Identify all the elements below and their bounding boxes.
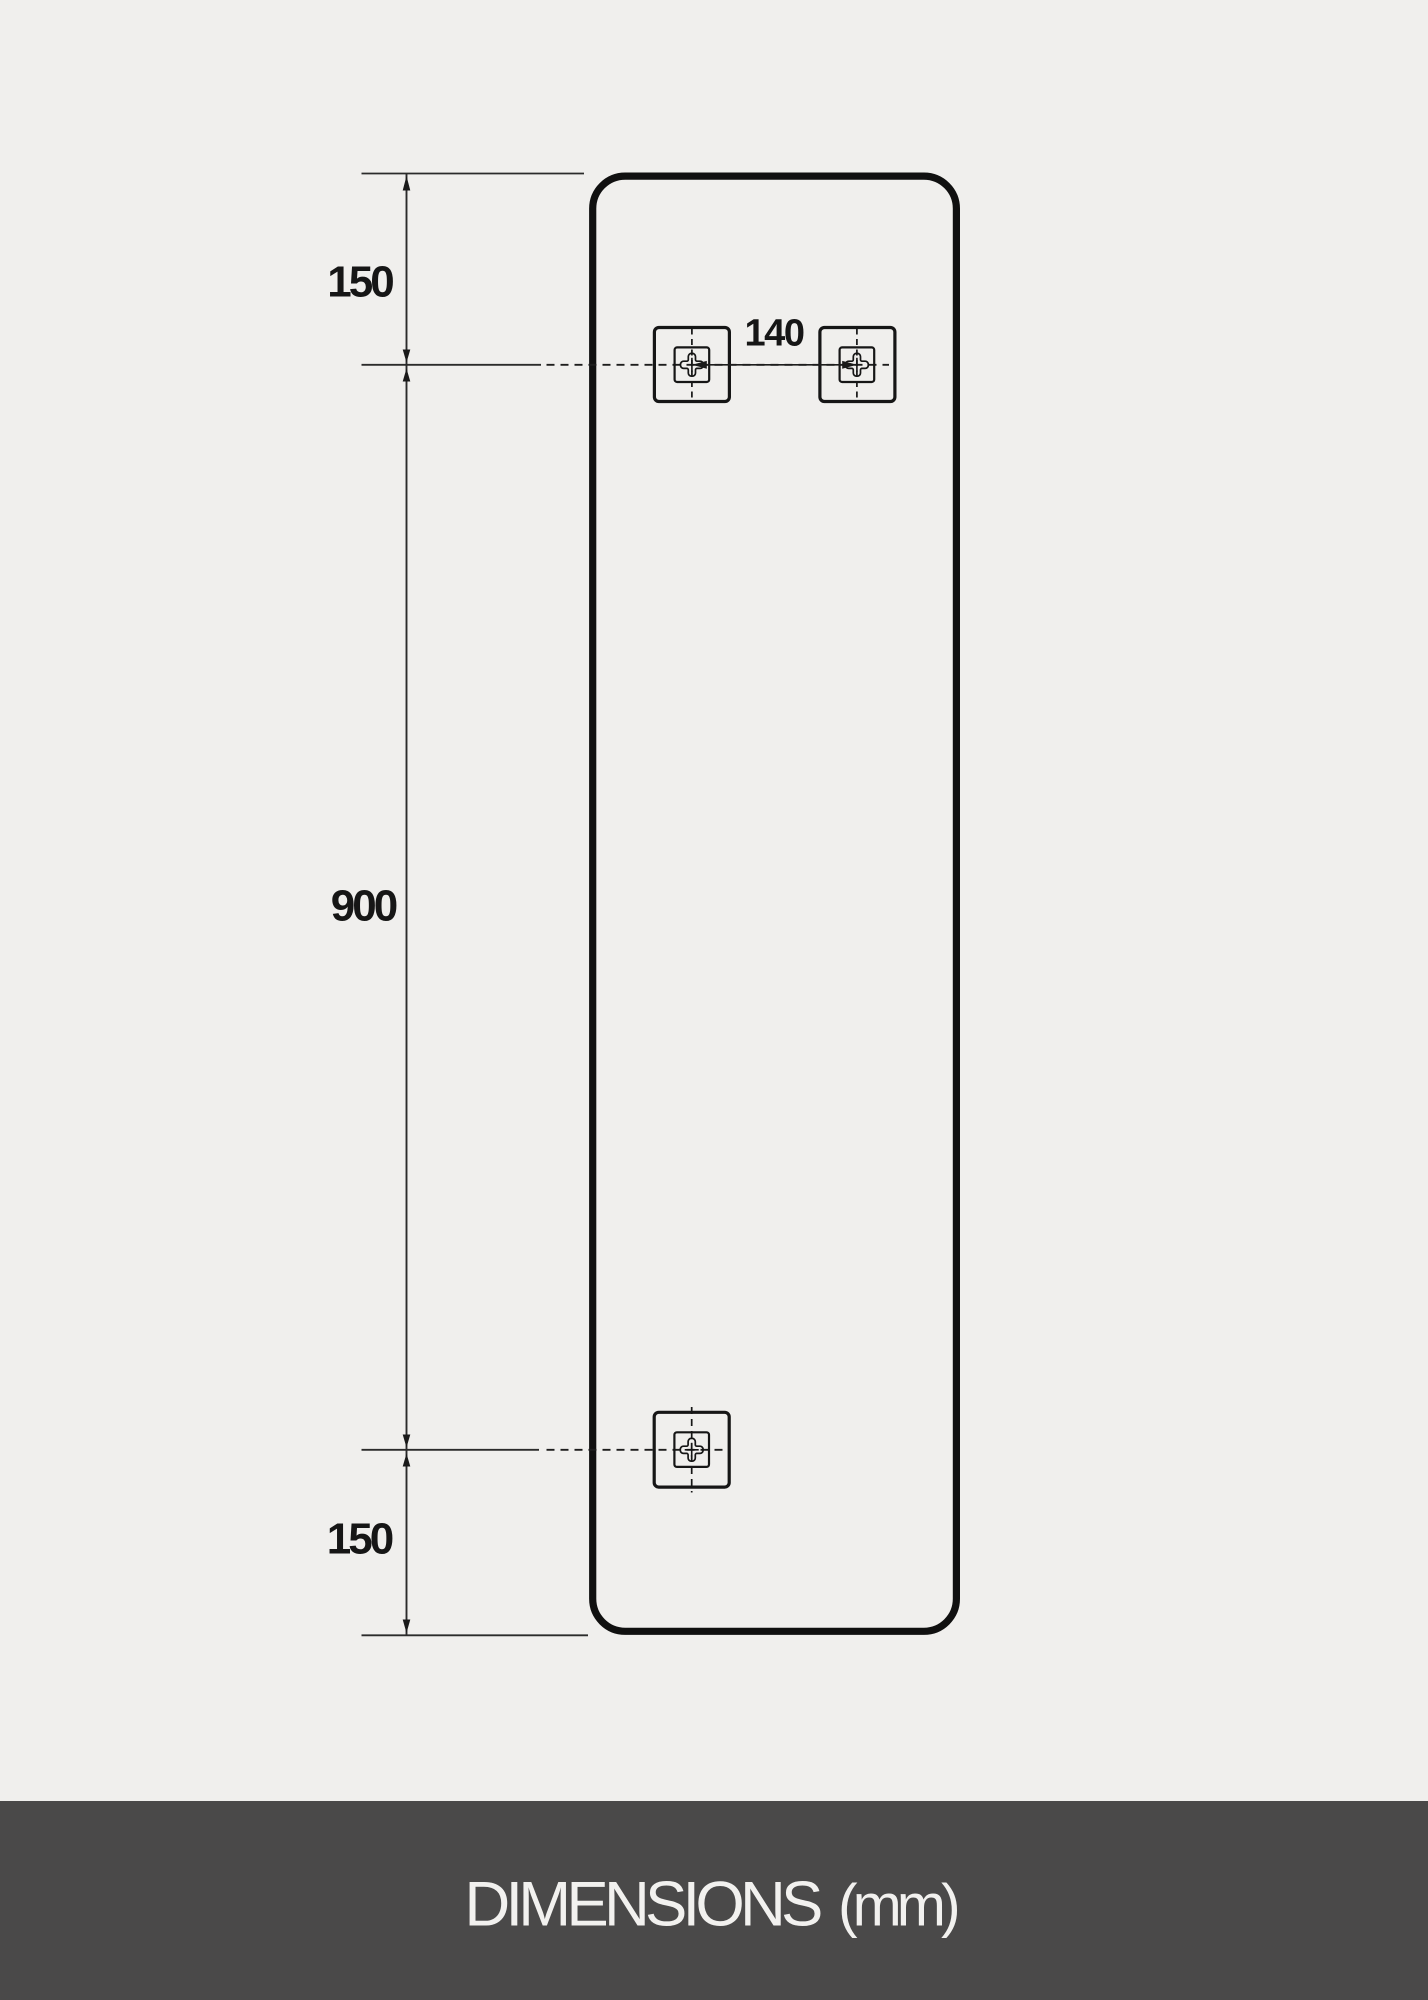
svg-text:150: 150 [327,257,393,306]
svg-text:DIMENSIONS (mm): DIMENSIONS (mm) [464,1870,957,1940]
svg-text:150: 150 [327,1514,393,1563]
svg-text:140: 140 [745,313,804,355]
svg-text:900: 900 [331,882,397,931]
